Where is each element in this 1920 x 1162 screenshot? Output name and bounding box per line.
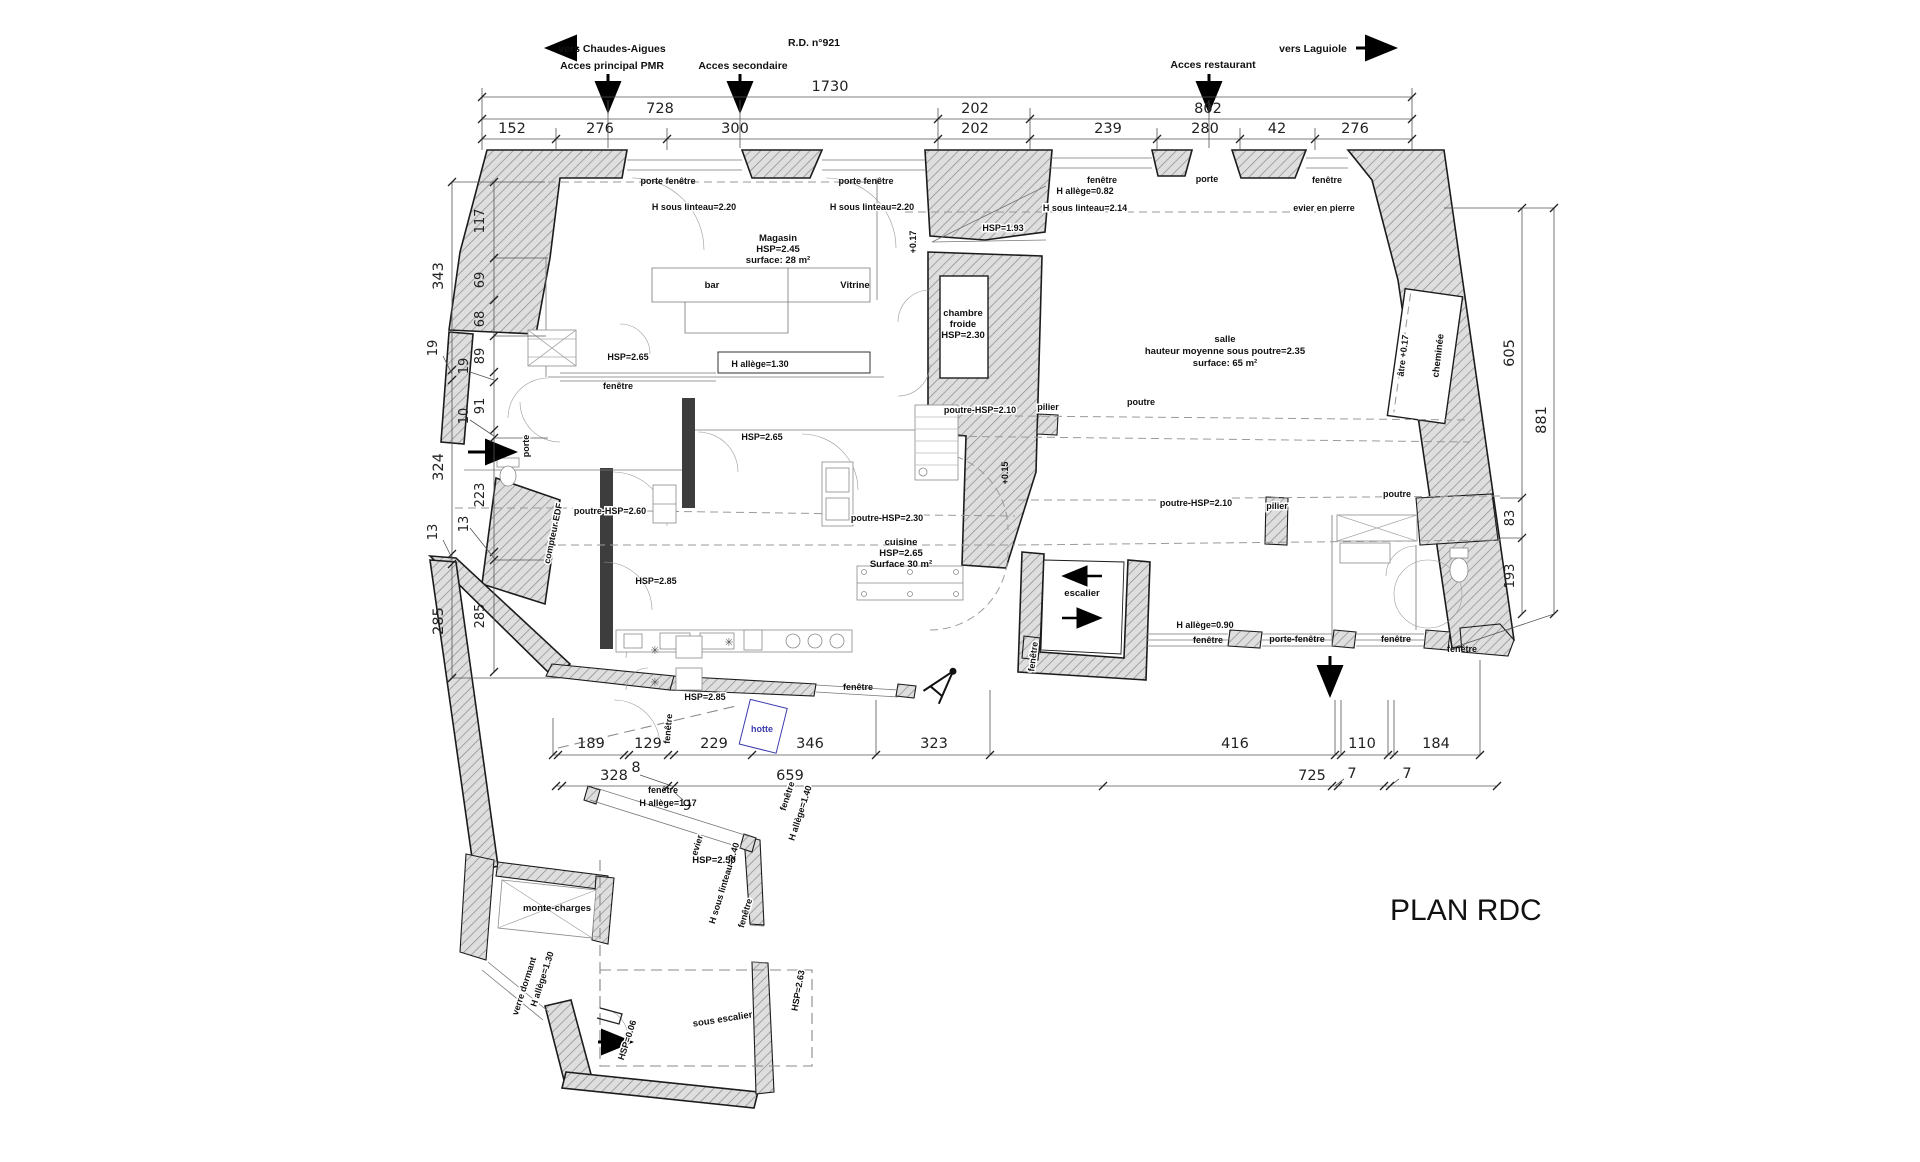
room-magasin: Magasin [759, 233, 797, 244]
dim: 285 [473, 604, 488, 629]
dim: 69 [473, 272, 488, 289]
label-evier-wing: evier [689, 833, 705, 857]
label-porte-top: porte [1196, 174, 1219, 184]
room-salle-hauteur: hauteur moyenne sous poutre=2.35 [1145, 346, 1306, 357]
room-salle: salle [1214, 334, 1235, 345]
room-escalier: escalier [1064, 588, 1100, 599]
room-monte-charges: monte-charges [523, 903, 591, 914]
dim: 300 [721, 121, 749, 137]
label-porte-fenetre-south: porte-fenêtre [1269, 634, 1325, 644]
dim: 7 [1402, 766, 1411, 782]
wall-wing-south [562, 1072, 758, 1108]
wall-top-small-pier [1152, 150, 1192, 176]
label-fenetre-magasin: fenêtre [603, 381, 633, 391]
dim: 19 [426, 340, 441, 357]
fan-icon: ✳ [650, 676, 659, 689]
room-magasin-surface: surface: 28 m² [746, 255, 810, 266]
label-fenetre-court: fenêtre [648, 785, 678, 795]
dim: 223 [473, 483, 488, 508]
label-poutre-a: poutre [1127, 397, 1155, 407]
dim: 152 [498, 121, 526, 137]
label-hsp-193: HSP=1.93 [982, 223, 1023, 233]
label-allege-130: H allège=1.30 [731, 359, 788, 369]
dim: 276 [586, 121, 614, 137]
compass-icon [923, 662, 962, 704]
fan-icon: ✳ [650, 644, 659, 657]
label-poutre-230: poutre-HSP=2.30 [851, 513, 923, 523]
dim: 117 [473, 209, 488, 234]
label-poutre-210-b: poutre-HSP=2.10 [1160, 498, 1232, 508]
label-fenetre-top: fenêtre [1087, 175, 1117, 185]
dim: 13 [457, 516, 472, 533]
wall-annex-east [592, 876, 614, 944]
label-linteau-214: H sous linteau=2.14 [1043, 203, 1127, 213]
label-hotte: hotte [751, 724, 773, 734]
wall-wc-corner [1416, 494, 1498, 545]
sheet-title: PLAN RDC [1390, 894, 1542, 927]
label-acces-secondaire: Acces secondaire [698, 60, 787, 72]
label-vers-chaudes-aigues: vers Chaudes-Aigues [558, 43, 666, 55]
basin-unit [822, 462, 853, 526]
floor-plan-sheet: ✳ ✳ ✳ vers Chaudes-Aig [0, 0, 1920, 1162]
label-pilier-b: pilier [1266, 501, 1288, 511]
dim: 202 [961, 121, 989, 137]
stair-room [1041, 560, 1124, 654]
tall-unit [653, 485, 676, 523]
dim: 725 [1298, 768, 1326, 784]
dim: 13 [426, 524, 441, 541]
dim: 605 [1502, 339, 1518, 367]
dim: 189 [577, 736, 605, 752]
dim: 324 [431, 453, 447, 481]
label-allege-117: H allège=1.17 [639, 798, 696, 808]
dim: 328 [600, 768, 628, 784]
label-evier-pierre: evier en pierre [1293, 203, 1355, 213]
label-vitrine: Vitrine [840, 280, 869, 291]
dim: 193 [1503, 564, 1518, 589]
label-fenetre-court-west: fenêtre [662, 713, 675, 744]
label-poutre-260: poutre-HSP=2.60 [574, 506, 646, 516]
room-froide-1: chambre [943, 308, 983, 319]
wall-top-left-corner [449, 150, 627, 334]
dim: 280 [1191, 121, 1219, 137]
room-sous-escalier: sous escalier [692, 1009, 753, 1029]
label-hsp-265-anteroom: HSP=2.65 [741, 432, 782, 442]
room-cuisine-surface: Surface 30 m² [870, 559, 932, 570]
label-hsp-250: HSP=2.50 [692, 855, 736, 866]
dim: 129 [634, 736, 662, 752]
wall-wing-east-lower [752, 962, 774, 1094]
label-hsp-285-south: HSP=2.85 [684, 692, 725, 702]
floor-plan-drawing: ✳ ✳ ✳ vers Chaudes-Aig [0, 0, 1920, 1162]
label-porte-left: porte [521, 435, 531, 458]
label-fenetre-kitchen: fenêtre [843, 682, 873, 692]
label-fenetre-wing-ne: fenêtre [778, 780, 797, 812]
label-linteau-220b: H sous linteau=2.20 [830, 202, 914, 212]
label-road-number: R.D. n°921 [788, 37, 840, 49]
label-porte-fenetre-2: porte fenêtre [838, 176, 893, 186]
dim: 416 [1221, 736, 1249, 752]
dim: 323 [920, 736, 948, 752]
radiator [528, 330, 576, 366]
dim: 89 [473, 348, 488, 365]
label-fenetre-south-1: fenêtre [1193, 635, 1223, 645]
label-hsp-265-magasin: HSP=2.65 [607, 352, 648, 362]
wall-kitchen-south-end [896, 684, 916, 698]
label-hsp-006: HSP=0.06 [616, 1019, 638, 1061]
label-fenetre-south-3: fenêtre [1447, 644, 1477, 654]
label-hsp-263: HSP=2.63 [790, 969, 807, 1011]
label-fenetre-south-2: fenêtre [1381, 634, 1411, 644]
room-salle-surface: surface: 65 m² [1193, 358, 1257, 369]
room-cuisine: cuisine [885, 537, 918, 548]
label-pilier-a: pilier [1037, 402, 1059, 412]
label-bar: bar [705, 280, 720, 291]
wall-top-pier [742, 150, 822, 178]
bar-counter [652, 268, 870, 333]
dim: 285 [431, 607, 447, 635]
room-froide-3: HSP=2.30 [941, 330, 985, 341]
label-linteau-240: H sous linteau=2.40 [707, 841, 741, 925]
room-froide-2: froide [950, 319, 976, 330]
wall-left-strip [441, 332, 473, 444]
wall-top-right-pier [1232, 150, 1306, 178]
dim: 728 [646, 101, 674, 117]
pilier-block-upper [1037, 414, 1058, 435]
dim: 343 [431, 262, 447, 290]
dim: 42 [1268, 121, 1286, 137]
dim: 7 [1347, 766, 1356, 782]
label-acces-principal-pmr: Acces principal PMR [560, 60, 664, 72]
dim: 19 [457, 358, 472, 375]
label-level-017: +0.17 [908, 231, 918, 254]
dim: 202 [961, 101, 989, 117]
label-fenetre-topright: fenêtre [1312, 175, 1342, 185]
dim: 8 [631, 760, 640, 776]
dim: 91 [473, 398, 488, 415]
dim: 802 [1194, 101, 1222, 117]
label-vers-laguiole: vers Laguiole [1279, 43, 1347, 55]
dim: 881 [1534, 406, 1550, 434]
label-hsp-285-room: HSP=2.85 [635, 576, 676, 586]
dim: 184 [1422, 736, 1450, 752]
kitchen-island [857, 566, 963, 600]
dim: 239 [1094, 121, 1122, 137]
label-level-015: +0.15 [1000, 462, 1010, 485]
dim: 83 [1503, 510, 1518, 527]
label-poutre-b: poutre [1383, 489, 1411, 499]
wall-annex-west [460, 854, 494, 960]
dim: 229 [700, 736, 728, 752]
label-poutre-210-a: poutre-HSP=2.10 [944, 405, 1016, 415]
label-allege-082: H allège=0.82 [1056, 186, 1113, 196]
label-acces-restaurant: Acces restaurant [1170, 59, 1256, 71]
shower [915, 405, 958, 480]
label-allege-090: H allège=0.90 [1176, 620, 1233, 630]
dim: 1730 [812, 79, 849, 95]
dim: 110 [1348, 736, 1376, 752]
dim: 10 [457, 408, 472, 425]
dim: 276 [1341, 121, 1369, 137]
fan-icon: ✳ [724, 636, 733, 649]
label-linteau-220a: H sous linteau=2.20 [652, 202, 736, 212]
wall-south-pier-2 [1332, 630, 1356, 648]
label-porte-fenetre-1: porte fenêtre [640, 176, 695, 186]
dim: 68 [473, 311, 488, 328]
wall-south-pier-1 [1228, 630, 1262, 648]
dim: 346 [796, 736, 824, 752]
room-magasin-hsp: HSP=2.45 [756, 244, 800, 255]
room-cuisine-hsp: HSP=2.65 [879, 548, 923, 559]
